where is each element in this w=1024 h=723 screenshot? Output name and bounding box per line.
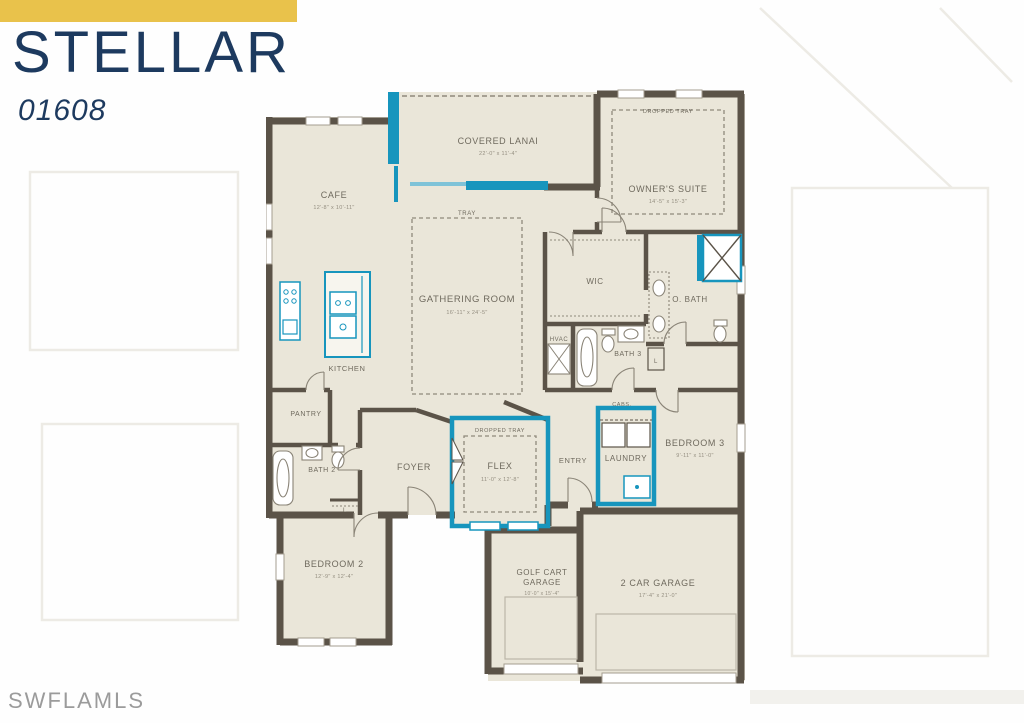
room-label-owners-suite: OWNER'S SUITE [628,184,707,194]
room-dims-covered-lanai: 22'-0" x 11'-4" [479,151,517,157]
hvac-unit [548,344,570,374]
room-label-covered-lanai: COVERED LANAI [458,136,539,146]
room-label-golf-cart-garage-2: GARAGE [523,578,561,587]
golf-cart-garage-door [504,664,578,674]
room-label-owners-bath: O. BATH [672,295,708,304]
plan-title: STELLAR [12,24,291,82]
room-label-kitchen: KITCHEN [328,364,365,373]
room-label-hvac: HVAC [550,337,569,343]
room-label-foyer: FOYER [397,462,431,472]
room-dims-golf-cart-garage: 10'-0" x 15'-4" [524,591,559,597]
room-label-two-car-garage: 2 CAR GARAGE [621,578,696,588]
room-dims-bedroom2: 12'-9" x 12'-4" [315,574,353,580]
ceiling-label-flex: DROPPED TRAY [475,428,525,434]
lanai-slider-left [388,92,399,164]
shower [697,235,741,281]
accent-bar [0,0,297,22]
room-label-bedroom2: BEDROOM 2 [304,559,363,569]
room-dims-flex: 11'-0" x 12'-8" [481,477,519,483]
room-dims-cafe: 12'-8" x 10'-11" [313,205,354,211]
kitchen-island [325,272,370,357]
watermark-swflamls: SWFLAMLS [8,688,145,714]
room-label-cafe: CAFE [321,190,347,200]
lanai-slider-left-thin [394,166,398,202]
ghost-strip [750,690,1024,704]
ceiling-label-owners-suite: DROPPED TRAY [643,109,693,115]
room-dims-bedroom3: 9'-11" x 11'-0" [676,453,714,459]
linen-label-2: L [343,508,347,514]
room-dims-owners-suite: 14'-5" x 15'-3" [649,199,687,205]
floor-plan: COVERED LANAI 22'-0" x 11'-4" DROPPED TR… [266,86,746,686]
lanai-edge [410,182,468,186]
room-dims-gathering: 16'-11" x 24'-5" [446,310,487,316]
room-label-entry: ENTRY [559,456,587,465]
room-label-bedroom3: BEDROOM 3 [665,438,724,448]
page: STELLAR 01608 SWFLAMLS [0,0,1024,723]
room-label-flex: FLEX [488,461,513,471]
two-car-garage-door [602,673,736,683]
room-label-gathering: GATHERING ROOM [419,294,515,305]
lanai-slider-bottom [466,181,548,190]
cabs-label: CABS. [612,402,632,408]
kitchen-counter [280,282,300,340]
room-label-wic: WIC [586,277,603,286]
linen-label-1: L [654,359,658,365]
flex-window [470,522,500,530]
room-label-laundry: LAUNDRY [605,454,647,463]
room-label-bath3: BATH 3 [614,351,642,358]
plan-number: 01608 [18,94,106,128]
flex-window [508,522,538,530]
room-label-golf-cart-garage-1: GOLF CART [516,568,567,577]
ceiling-label-gathering: TRAY [458,211,476,217]
room-label-pantry: PANTRY [290,411,321,418]
room-label-bath2: BATH 2 [308,467,336,474]
room-dims-two-car-garage: 17'-4" x 21'-0" [639,593,677,599]
